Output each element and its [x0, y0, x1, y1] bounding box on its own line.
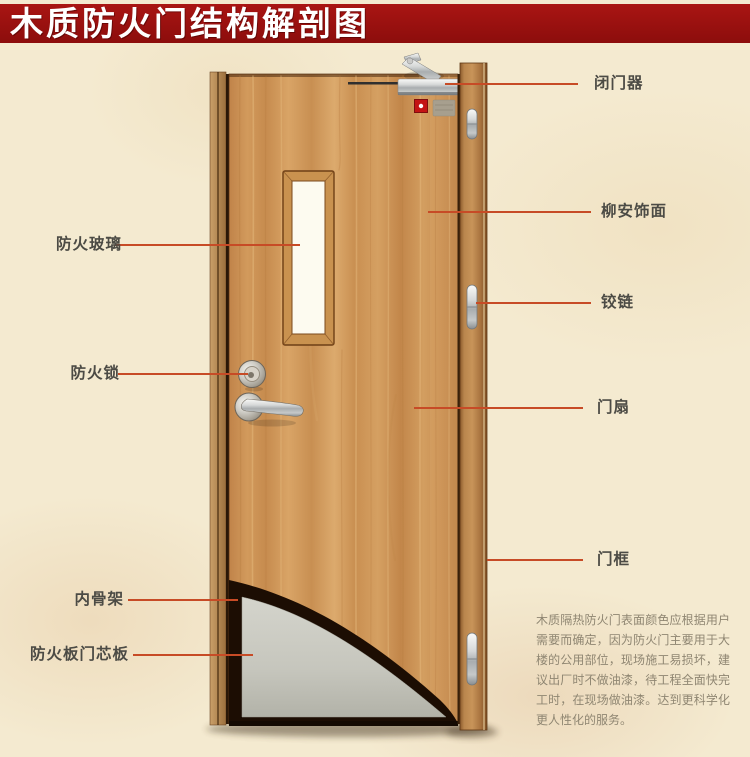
- hinge-middle: [467, 285, 477, 329]
- label-fire-lock: 防火锁: [70, 366, 120, 382]
- label-door-frame: 门框: [597, 552, 630, 568]
- leader-line-fire-lock: [118, 373, 248, 375]
- hinge-top: [467, 109, 477, 139]
- leader-line-fire-glass: [115, 244, 300, 246]
- leader-line-door-frame: [487, 559, 583, 561]
- label-fire-glass: 防火玻璃: [56, 237, 122, 253]
- fire-glass-window: [283, 171, 334, 345]
- hinge-bottom: [467, 633, 477, 685]
- label-door-leaf: 门扇: [597, 400, 630, 416]
- leader-line-fire-board-core: [133, 654, 253, 656]
- label-fire-board-core: 防火板门芯板: [30, 647, 129, 663]
- door-bottom-edge: [229, 721, 458, 726]
- label-lauan-veneer: 柳安饰面: [601, 204, 667, 220]
- product-description: 木质隔热防火门表面颜色应根据用户需要而确定，因为防火门主要用于大楼的公用部位，现…: [536, 610, 730, 730]
- leader-line-door-leaf: [414, 407, 583, 409]
- leader-line-hinge: [476, 302, 591, 304]
- label-door-closer: 闭门器: [594, 76, 644, 92]
- leader-line-inner-skeleton: [128, 599, 238, 601]
- closer-label-plate: [433, 100, 455, 116]
- label-hinge: 铰链: [601, 295, 634, 311]
- leader-line-door-closer: [445, 83, 578, 85]
- fire-door-diagram-page: 木质防火门结构解剖图: [0, 0, 750, 757]
- door-left-edge: [210, 72, 230, 725]
- leader-line-lauan-veneer: [428, 211, 591, 213]
- door-leaf: [229, 74, 459, 726]
- label-inner-skeleton: 内骨架: [74, 592, 124, 608]
- door-frame: [458, 63, 488, 730]
